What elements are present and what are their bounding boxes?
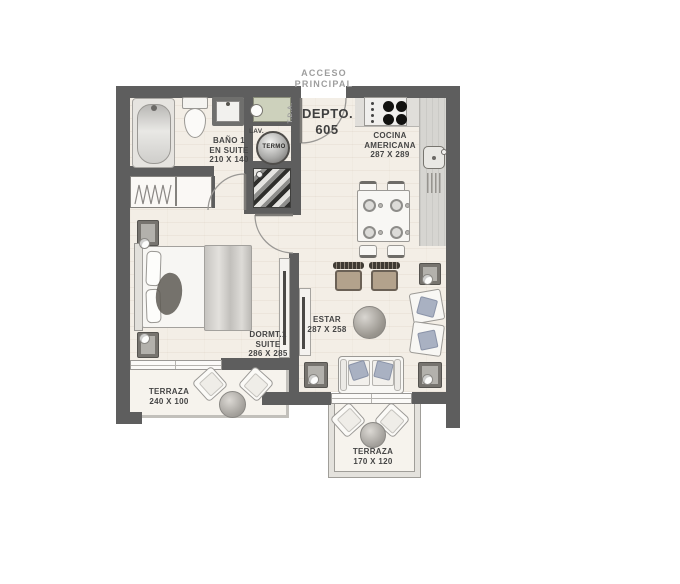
cup-icon [378,203,383,208]
lounge-chair [409,288,446,324]
wall-shower-bottom [244,208,301,214]
duvet-icon [204,245,252,331]
terrace-bedroom-dimensions: 240 X 100 [149,397,188,406]
dining-chair [387,245,405,258]
terrace-living-label: TERRAZA 170 X 120 [344,447,402,466]
wall-right-stub [446,404,460,428]
kitchen-counter-right [419,96,446,246]
kitchen-sink-icon [423,146,445,169]
bathtub-faucet-icon [151,105,157,111]
cup-icon [405,230,410,235]
cup-icon [405,203,410,208]
dining-chair [359,245,377,258]
bedroom-dimensions: 286 X 285 [248,349,287,358]
lamp-icon [422,374,433,385]
unit-label: DEPTO. 605 [302,106,352,137]
stove-cooktop-icon [364,97,407,126]
kitchen-dimensions: 287 X 289 [370,150,409,159]
lamp-icon [422,274,433,285]
sink-drainboard-icon [427,173,442,193]
bathroom-vanity-icon [212,97,244,126]
lamp-icon [139,238,150,249]
lamp-icon [139,333,150,344]
wall-left [116,86,130,424]
lounge-chair [409,321,445,357]
wall-living-bottom-left [262,392,331,405]
bedroom-label: DORMT.1 SUITE 286 X 285 [243,330,293,359]
shower-icon [253,168,291,208]
cup-icon [378,230,383,235]
plate-icon [363,226,376,239]
terrace-table-icon [360,422,386,448]
cabinet-knob-icon [250,104,263,117]
toilet-icon [181,97,209,141]
plate-icon [390,226,403,239]
bar-stool-icon [369,262,400,292]
kitchen-label: COCINA AMERICANA 287 X 289 [361,131,419,160]
sliding-glass-door [331,393,412,404]
closet-icon [130,176,212,208]
terrace-living-dimensions: 170 X 120 [353,457,392,466]
wall-right [446,86,460,428]
bathroom-dimensions: 210 X 140 [209,155,248,164]
plate-icon [363,199,376,212]
lamp-icon [308,374,319,385]
bed-icon [134,243,252,331]
plate-icon [390,199,403,212]
laundry-label: LAV. [249,128,275,136]
bathtub-icon [132,98,175,168]
terrace-bedroom-label: TERRAZA 240 X 100 [140,387,198,406]
bathroom-label: BAÑO 1 EN SUITE 210 X 140 [199,136,259,165]
wall-left-foot [116,412,142,424]
water-heater-label: TERMO [258,144,290,151]
electrical-panel-label: T.D.A. [287,100,295,126]
pouf-icon [353,306,386,339]
unit-number: 605 [315,122,338,137]
living-label: ESTAR 287 X 258 [302,315,352,334]
wall-living-bottom-right [412,392,460,404]
bar-stool-icon [333,262,364,292]
floor-plan: ACCESO PRINCIPAL DEPTO. 605 T.D.A. BAÑO … [0,0,680,584]
living-dimensions: 287 X 258 [307,325,346,334]
access-label: ACCESO PRINCIPAL [290,68,358,90]
wall-bedroom-divider [289,253,299,392]
terrace-table-icon [219,391,246,418]
sofa-icon [338,356,404,394]
